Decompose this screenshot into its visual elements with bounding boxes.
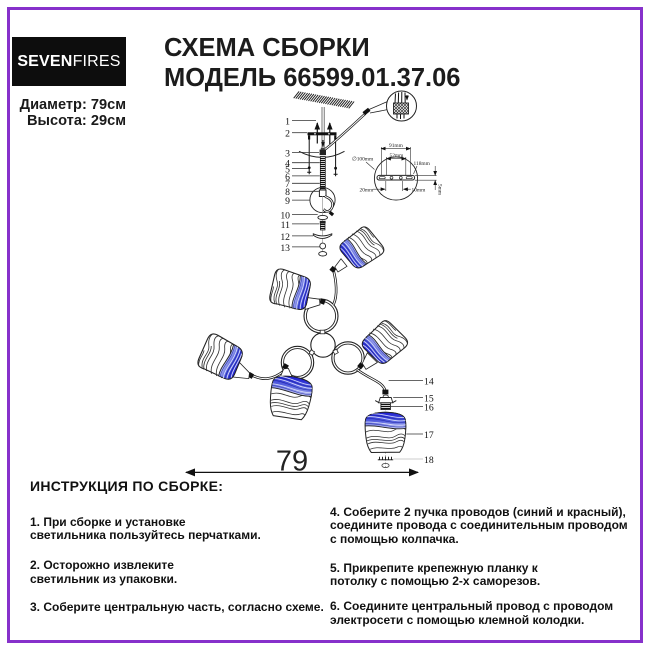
svg-text:∅100mm: ∅100mm (352, 157, 374, 163)
svg-text:17: 17 (424, 430, 434, 441)
svg-text:5mm: 5mm (437, 184, 443, 196)
svg-text:9: 9 (285, 196, 290, 207)
svg-text:79: 79 (276, 446, 308, 478)
svg-text:2: 2 (285, 129, 290, 140)
svg-text:16: 16 (424, 402, 434, 413)
svg-text:18: 18 (424, 455, 434, 466)
svg-text:10mm: 10mm (412, 187, 427, 193)
svg-text:20mm: 20mm (360, 187, 375, 193)
svg-text:13: 13 (280, 243, 290, 254)
svg-text:52mm: 52mm (390, 153, 405, 159)
svg-text:1: 1 (285, 116, 290, 127)
svg-text:12: 12 (280, 232, 290, 243)
svg-text:11: 11 (281, 220, 290, 231)
svg-text:91mm: 91mm (389, 143, 404, 149)
svg-text:14: 14 (424, 376, 434, 387)
svg-text:118mm: 118mm (414, 161, 431, 167)
